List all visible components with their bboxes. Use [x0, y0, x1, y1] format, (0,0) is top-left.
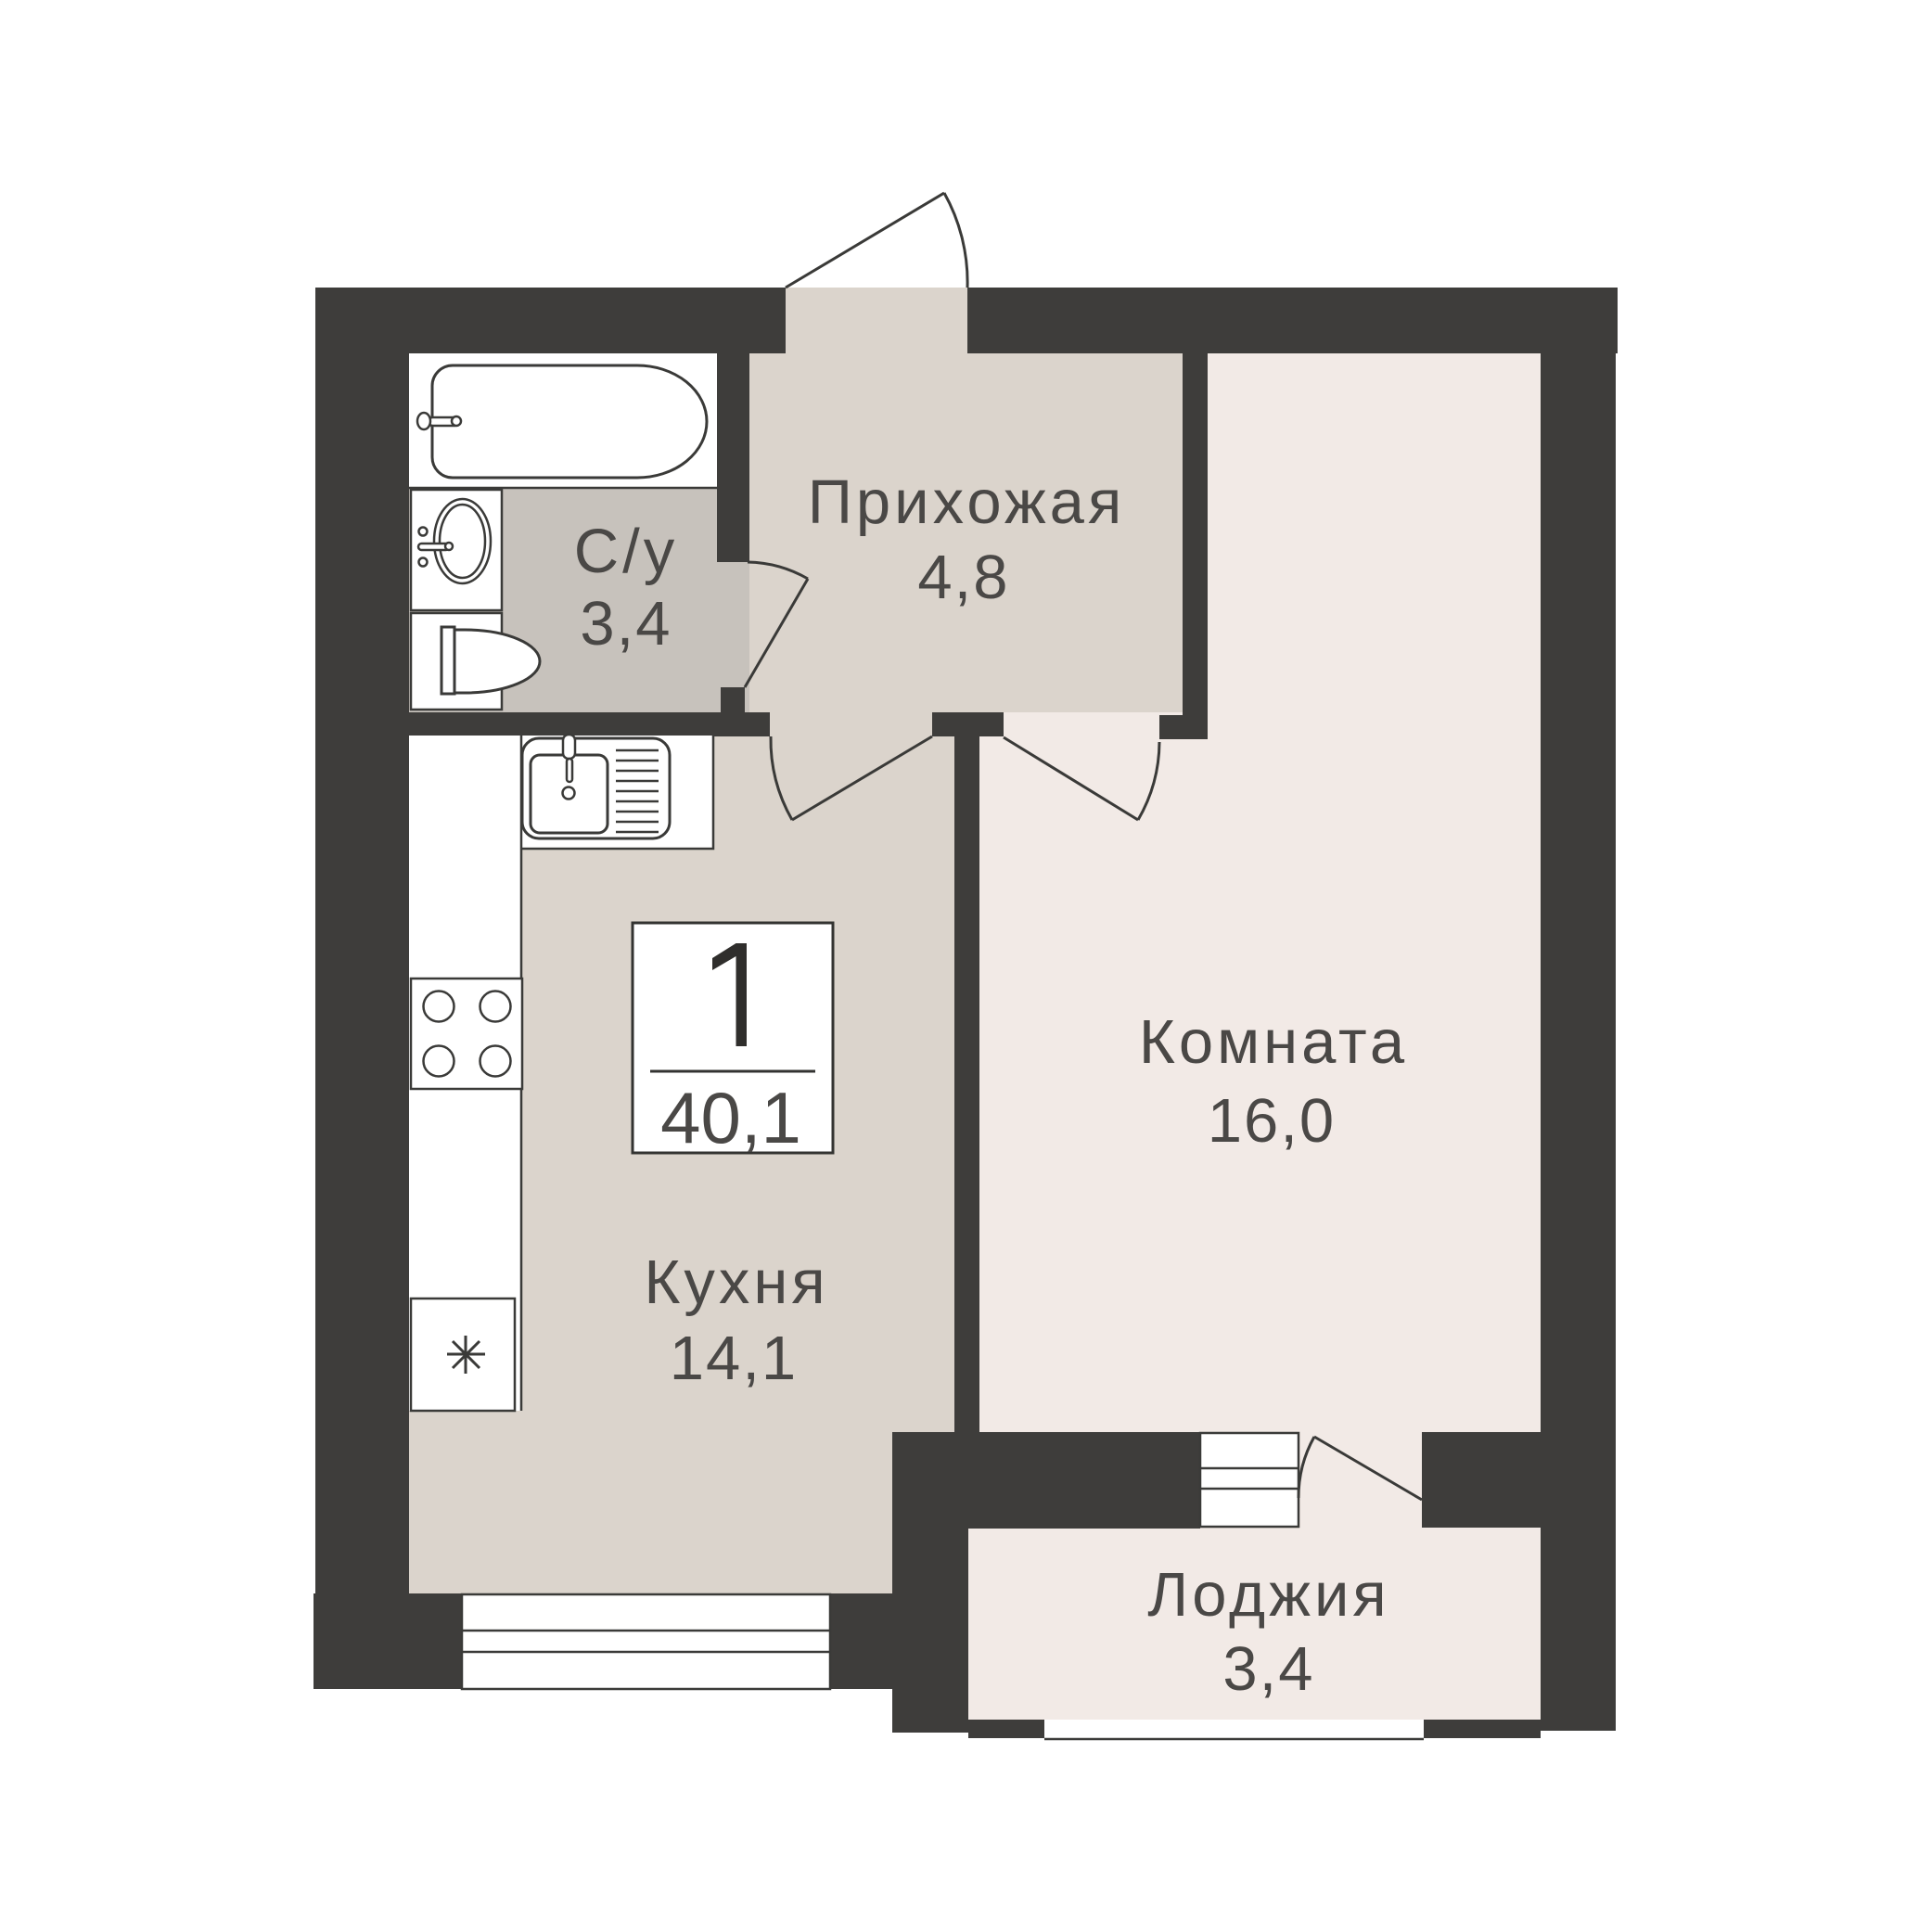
svg-text:3,4: 3,4: [1222, 1634, 1314, 1704]
svg-text:Лоджия: Лоджия: [1147, 1560, 1389, 1630]
svg-text:4,8: 4,8: [917, 543, 1009, 612]
svg-text:16,0: 16,0: [1208, 1086, 1336, 1156]
svg-text:14,1: 14,1: [670, 1324, 798, 1393]
svg-text:40,1: 40,1: [660, 1077, 801, 1158]
svg-text:Комната: Комната: [1139, 1007, 1408, 1077]
svg-text:С/у: С/у: [574, 517, 679, 586]
svg-text:3,4: 3,4: [580, 589, 672, 659]
svg-text:Кухня: Кухня: [644, 1247, 828, 1317]
svg-text:Прихожая: Прихожая: [808, 467, 1125, 537]
